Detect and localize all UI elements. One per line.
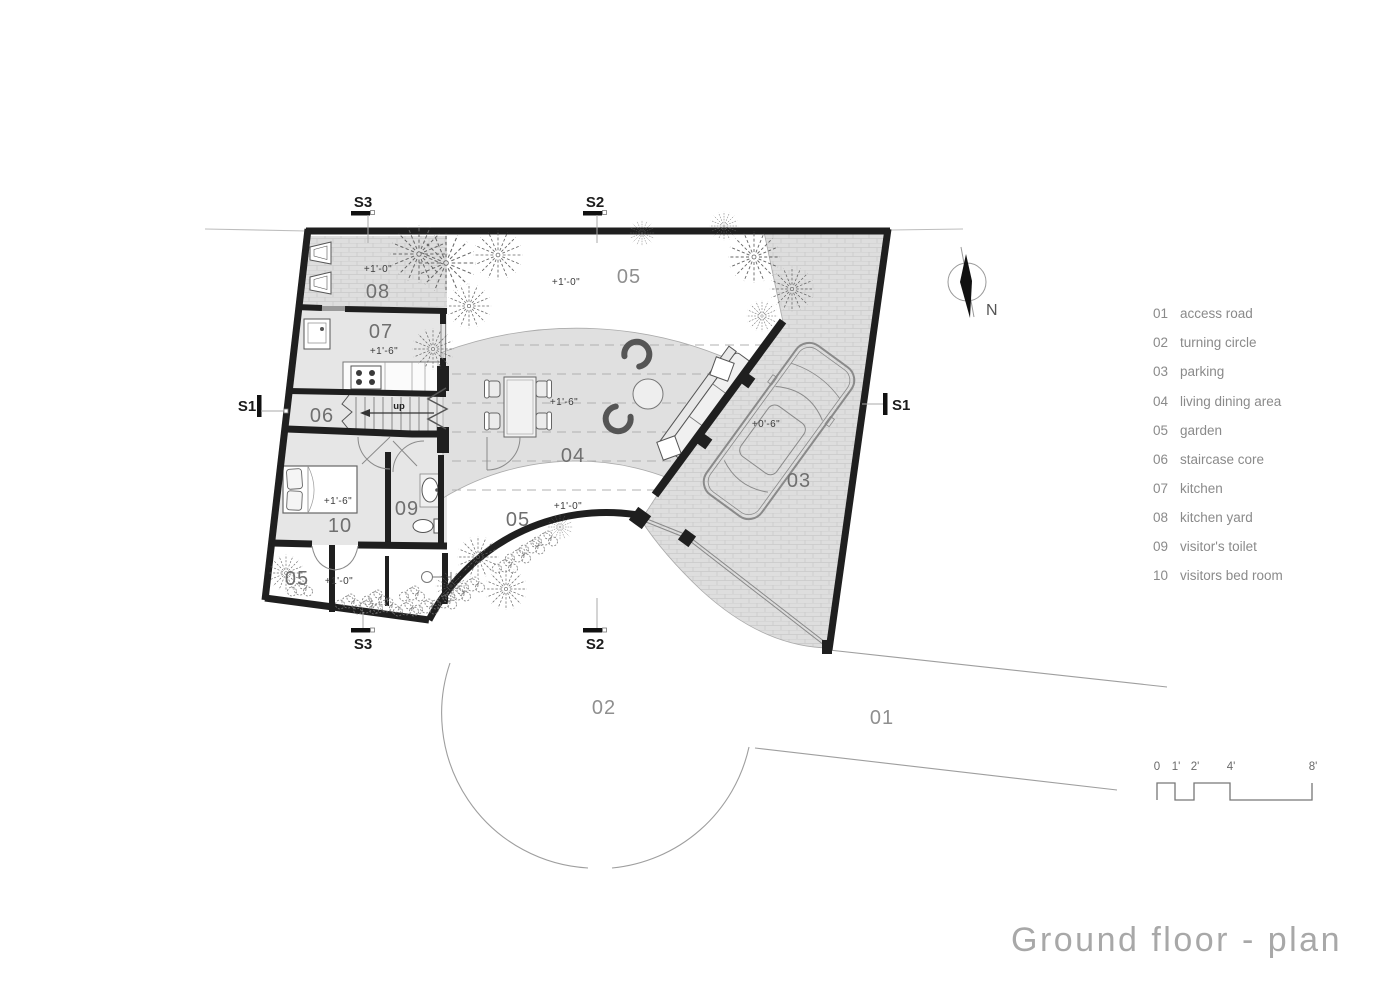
room-label-05-mid: 05 [506,509,530,531]
room-label-09: 09 [395,498,419,520]
legend-num: 01 [1153,306,1168,321]
sheet-title: Ground floor - plan [1011,921,1342,959]
legend-item: 08 kitchen yard [1153,510,1253,525]
north-arrow: N [948,247,998,319]
washbasin [420,474,441,507]
legend-item: 03 parking [1153,364,1224,379]
floor-fills [271,232,886,648]
legend-label: garden [1180,423,1222,438]
legend-label: turning circle [1180,335,1257,350]
room-label-07: 07 [369,321,393,343]
section-marker-s3-top: S3 [351,194,375,243]
wall-bottom [265,598,429,620]
room-label-05-top: 05 [617,266,641,288]
stair-up-label: up [393,401,405,412]
ground-floor-plan-sheet: S3 S2 S1 S1 S3 [0,0,1390,982]
tree-icon [485,568,527,610]
legend-item: 07 kitchen [1153,481,1223,496]
legend-label: kitchen yard [1180,510,1253,525]
elevation-label-05-bottom: +1'-0" [325,576,353,587]
north-label: N [986,302,998,319]
legend-item: 04 living dining area [1153,394,1282,409]
dining-chair [536,380,552,398]
section-marker-s1-left: S1 [238,395,288,417]
tree-icon [710,212,739,241]
legend-num: 09 [1153,539,1168,554]
room-label-05-bottom: 05 [285,568,309,590]
shrub-icon [363,590,388,605]
tree-icon [473,230,522,279]
construction-line [891,229,963,230]
wall-bedroom-bottom [272,543,447,546]
legend-num: 05 [1153,423,1168,438]
section-label: S1 [238,398,256,415]
dining-chair [536,412,552,430]
elevation-label-08: +1'-0" [364,264,392,275]
glass-door-yard [322,306,345,311]
turning-circle [442,663,588,868]
scale-tick-label: 2' [1191,761,1200,773]
access-road-edge [829,650,1167,687]
legend-item: 01 access road [1153,306,1253,321]
legend-item: 09 visitor's toilet [1153,539,1257,554]
kitchen-sink [304,319,330,349]
shrub-icon [400,586,425,601]
legend-num: 07 [1153,481,1168,496]
dining-table [504,377,536,437]
section-label: S3 [354,636,372,653]
tree-icon [447,284,491,328]
construction-line [205,229,307,231]
section-label: S2 [586,636,604,653]
section-marker-s2-bottom: S2 [583,598,607,653]
elevation-label-07: +1'-6" [370,346,398,357]
wall-stair-top [289,391,443,394]
floor-plan-drawing: S3 S2 S1 S1 S3 [0,0,1390,982]
legend-num: 03 [1153,364,1168,379]
access-road-edge [755,748,1117,790]
legend-item: 10 visitors bed room [1153,568,1283,583]
toilet-wc [413,519,442,533]
tree-icon [746,300,777,331]
legend-item: 05 garden [1153,423,1222,438]
room-label-04: 04 [561,445,585,467]
dining-chair [485,412,501,430]
room-label-03: 03 [787,470,811,492]
legend-label: kitchen [1180,481,1223,496]
wall-yard-kitchen [296,307,447,311]
section-marker-s2-top: S2 [583,194,607,243]
room-label-06: 06 [310,405,334,427]
room-label-10: 10 [328,515,352,537]
room-label-08: 08 [366,281,390,303]
scale-bar: 0 1' 2' 4' 8' [1154,761,1318,800]
legend-num: 08 [1153,510,1168,525]
turning-circle [612,747,749,868]
elevation-label-04: +1'-6" [550,397,578,408]
legend-num: 02 [1153,335,1168,350]
legend: 01 access road 02 turning circle 03 park… [1153,306,1283,583]
elevation-label-03: +0'-6" [752,419,780,430]
legend-label: parking [1180,364,1224,379]
legend-label: visitors bed room [1180,568,1283,583]
scale-tick-label: 1' [1172,761,1181,773]
room-label-01: 01 [870,707,894,729]
legend-label: living dining area [1180,394,1282,409]
elevation-label-10: +1'-6" [324,496,352,507]
legend-item: 02 turning circle [1153,335,1257,350]
legend-item: 06 staircase core [1153,452,1264,467]
dining-chair [485,380,501,398]
legend-label: visitor's toilet [1180,539,1257,554]
section-label: S3 [354,194,372,211]
shrub-icon [520,539,545,554]
elevation-label-05-top: +1'-0" [552,277,580,288]
section-marker-s3-bottom: S3 [351,612,375,653]
garden-curved-wall [429,512,638,620]
scale-tick-label: 8' [1309,761,1318,773]
section-label: S1 [892,397,910,414]
legend-num: 10 [1153,568,1168,583]
legend-num: 04 [1153,394,1169,409]
scale-tick-label: 4' [1227,761,1236,773]
shrub-icon [460,577,485,592]
legend-label: staircase core [1180,452,1264,467]
legend-label: access road [1180,306,1253,321]
elevation-label-05-mid: +1'-0" [554,501,582,512]
section-marker-s1-right: S1 [862,393,910,415]
scale-tick-label: 0 [1154,761,1160,773]
coffee-table [633,379,663,409]
legend-num: 06 [1153,452,1168,467]
stove [351,366,381,389]
room-label-02: 02 [592,697,616,719]
section-label: S2 [586,194,604,211]
